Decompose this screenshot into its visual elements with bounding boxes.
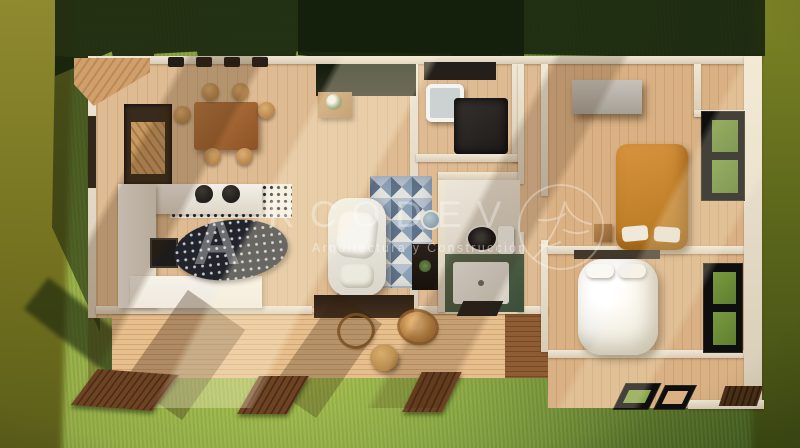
shower-drain [478,280,484,286]
console-plant [419,260,431,272]
potted-plant [326,94,342,110]
window-pane [713,312,736,345]
wall-closet-vertical [694,64,701,116]
bath-mat [457,301,504,316]
dining-chair [232,83,249,100]
media-console [412,244,438,290]
armchair-footrest [340,264,374,288]
wall-right [744,56,762,408]
bed-pillow [654,226,681,243]
wall-counter-items [224,57,240,67]
white-bed [578,259,658,355]
wall-counter-items [168,57,184,67]
bed-pillow [618,264,646,278]
wall-corridor-bath [438,180,445,312]
dining-chair [174,106,191,123]
wall-counter-items [252,57,268,67]
dining-chair [202,83,219,100]
wall-laundry-bottom [416,154,520,162]
laundry-counter [424,62,496,80]
dining-chair [204,148,221,165]
patio-slats [719,386,763,406]
dining-table [194,102,258,150]
wall-hall-east-upper [541,64,548,196]
wall-hall-west-upper [518,64,524,184]
window-pane [713,272,736,304]
dining-chair [258,102,275,119]
circle-tree-branch-logo [518,184,604,270]
window-pane [712,120,738,152]
tree-branch-icon [520,186,602,268]
entry-porch [124,104,172,186]
washer [454,98,508,154]
entry-steps [131,122,165,174]
door-pane [623,390,651,403]
shower-tray [453,262,509,304]
bar-stool [222,185,240,203]
window-pane [712,160,738,193]
window-left-wall [88,116,96,188]
hall-mirror [421,210,441,230]
bed-pillow [621,225,648,242]
door-pane [662,391,688,404]
coffee-table [370,344,398,371]
lounge-armchair [328,198,386,296]
wall-counter-items [196,57,212,67]
cistern-unit [498,226,514,254]
toilet [468,227,496,250]
architectural-render: A RCODEV Arquitectura y Construcción [0,0,800,448]
wardrobe [572,80,642,114]
armchair-cushion [334,210,379,261]
bar-stool [195,185,213,203]
orange-bed [616,144,688,250]
dining-chair [236,148,253,165]
window-top-right [702,112,744,200]
wall-bath-top [438,172,520,180]
window-bottom-right [704,264,742,352]
